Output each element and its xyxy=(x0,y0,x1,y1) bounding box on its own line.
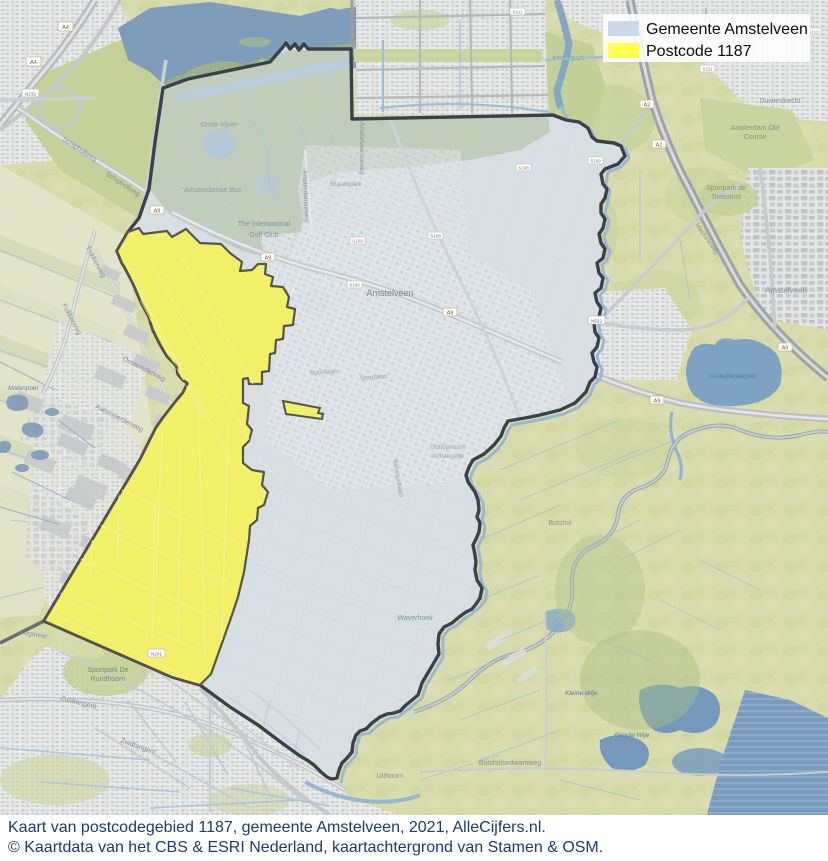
svg-text:Gemeente Amstelveen: Gemeente Amstelveen xyxy=(646,21,808,38)
svg-text:Amstelsdijk: Amstelsdijk xyxy=(432,453,466,460)
svg-text:S109: S109 xyxy=(352,239,363,244)
svg-text:S111: S111 xyxy=(703,67,713,72)
svg-text:Grote Vijver: Grote Vijver xyxy=(201,122,238,129)
svg-text:Duivendrecht: Duivendrecht xyxy=(759,98,800,105)
svg-text:Postcode 1187: Postcode 1187 xyxy=(646,43,752,60)
svg-text:S109: S109 xyxy=(590,159,601,164)
svg-text:Amstelveen: Amstelveen xyxy=(366,288,413,298)
svg-text:A9: A9 xyxy=(654,399,661,405)
svg-text:A2: A2 xyxy=(644,103,651,109)
svg-text:Sportpark de: Sportpark de xyxy=(706,185,746,192)
svg-text:Sportpark De: Sportpark De xyxy=(87,667,128,674)
svg-text:S109: S109 xyxy=(430,234,441,239)
svg-text:Golf Club: Golf Club xyxy=(249,232,278,239)
svg-text:Botsholsedwarsweg: Botsholsedwarsweg xyxy=(479,760,541,767)
svg-text:Golfcentrum: Golfcentrum xyxy=(430,444,465,451)
svg-text:N232: N232 xyxy=(25,92,36,97)
svg-text:N522: N522 xyxy=(591,319,602,324)
svg-text:Amstelveenseweg: Amstelveenseweg xyxy=(358,122,365,175)
svg-text:Malenpoel: Malenpoel xyxy=(8,385,39,392)
svg-text:© Kaartdata van het CBS & ESRI: © Kaartdata van het CBS & ESRI Nederland… xyxy=(8,839,603,856)
svg-text:Groote Wije: Groote Wije xyxy=(615,732,650,739)
svg-text:Uithoorn: Uithoorn xyxy=(377,773,404,780)
svg-text:A4: A4 xyxy=(62,25,69,31)
svg-text:S112: S112 xyxy=(808,30,819,35)
svg-text:Ouderkerkerplas: Ouderkerkerplas xyxy=(709,373,758,380)
svg-text:S108: S108 xyxy=(349,283,360,288)
svg-text:Braampark: Braampark xyxy=(330,181,363,188)
svg-text:Amsterdam Old: Amsterdam Old xyxy=(731,125,780,132)
svg-text:A9: A9 xyxy=(447,311,454,317)
svg-text:A9: A9 xyxy=(782,346,789,352)
svg-text:A2: A2 xyxy=(656,143,663,149)
svg-text:S108: S108 xyxy=(518,166,529,171)
svg-text:Rundhoorn: Rundhoorn xyxy=(91,676,126,683)
svg-text:Waverhoek: Waverhoek xyxy=(397,615,433,622)
svg-text:N201: N201 xyxy=(151,652,162,657)
svg-text:A9: A9 xyxy=(265,256,272,262)
svg-text:Kaart van postcodegebied 1187,: Kaart van postcodegebied 1187, gemeente … xyxy=(8,819,546,836)
svg-text:'Amsterdamse Bos: 'Amsterdamse Bos xyxy=(183,187,242,194)
svg-text:Amstelveen: Amstelveen xyxy=(765,286,807,295)
svg-text:Toekomst: Toekomst xyxy=(711,194,741,201)
svg-text:A9: A9 xyxy=(154,209,161,215)
svg-text:The International: The International xyxy=(238,221,291,228)
svg-text:Botshol: Botshol xyxy=(548,520,572,527)
svg-text:Course: Course xyxy=(744,134,767,141)
svg-text:S111: S111 xyxy=(513,10,523,15)
svg-text:Kleine Wije: Kleine Wije xyxy=(565,690,598,697)
svg-text:A4: A4 xyxy=(30,60,37,66)
